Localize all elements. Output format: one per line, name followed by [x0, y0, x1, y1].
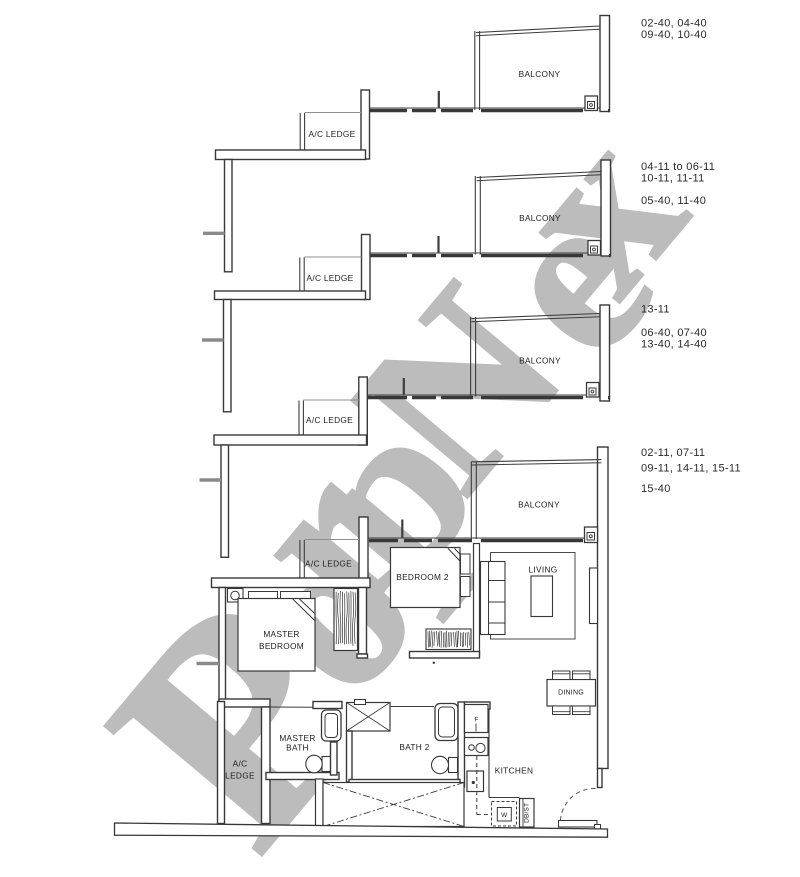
svg-text:A/C LEDGE: A/C LEDGE: [306, 415, 353, 425]
svg-text:KITCHEN: KITCHEN: [495, 766, 534, 776]
svg-text:BALCONY: BALCONY: [519, 356, 561, 366]
svg-text:A/C LEDGE: A/C LEDGE: [307, 273, 354, 283]
svg-text:BATH 2: BATH 2: [399, 742, 429, 752]
svg-text:09-11, 14-11, 15-11: 09-11, 14-11, 15-11: [641, 462, 741, 474]
svg-text:MASTER: MASTER: [263, 629, 299, 639]
svg-text:09-40, 10-40: 09-40, 10-40: [641, 29, 707, 41]
svg-text:04-11 to 06-11: 04-11 to 06-11: [641, 161, 715, 173]
svg-text:BEDROOM: BEDROOM: [259, 641, 304, 651]
svg-text:A/C LEDGE: A/C LEDGE: [305, 559, 352, 569]
svg-text:F: F: [474, 717, 478, 724]
svg-text:A/C: A/C: [233, 759, 248, 769]
svg-text:W: W: [501, 812, 508, 819]
svg-text:DINING: DINING: [558, 690, 584, 697]
svg-text:02-40, 04-40: 02-40, 04-40: [641, 18, 707, 30]
svg-text:A/C LEDGE: A/C LEDGE: [309, 129, 356, 139]
svg-text:DB/ST: DB/ST: [524, 803, 531, 823]
svg-text:13-40, 14-40: 13-40, 14-40: [641, 339, 707, 351]
svg-text:BALCONY: BALCONY: [519, 69, 561, 79]
svg-text:BATH: BATH: [286, 743, 309, 753]
svg-text:BALCONY: BALCONY: [519, 213, 561, 223]
svg-text:02-11, 07-11: 02-11, 07-11: [641, 447, 705, 459]
svg-text:05-40, 11-40: 05-40, 11-40: [641, 195, 706, 207]
svg-text:15-40: 15-40: [641, 483, 671, 495]
svg-text:BEDROOM 2: BEDROOM 2: [396, 572, 449, 582]
svg-text:LEDGE: LEDGE: [225, 771, 255, 781]
svg-text:10-11, 11-11: 10-11, 11-11: [641, 172, 705, 184]
svg-text:LIVING: LIVING: [528, 565, 557, 575]
svg-text:MASTER: MASTER: [279, 733, 315, 743]
svg-text:06-40, 07-40: 06-40, 07-40: [641, 327, 707, 339]
svg-text:BALCONY: BALCONY: [518, 500, 560, 510]
svg-text:13-11: 13-11: [641, 304, 670, 316]
